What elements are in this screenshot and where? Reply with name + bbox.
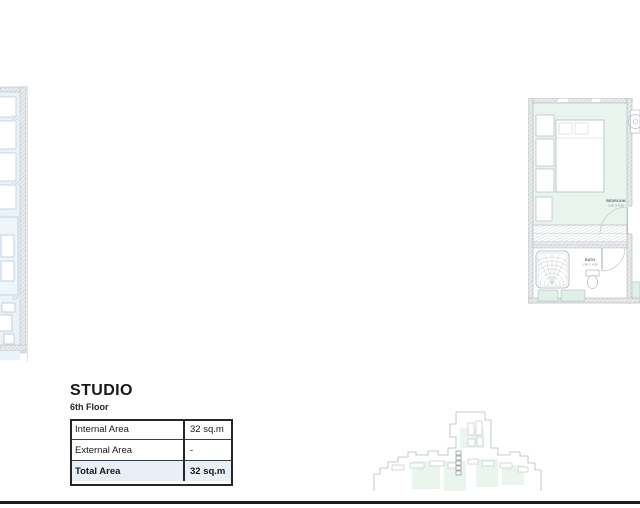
bath-label: BATH [585,258,595,262]
floor-label: 6th Floor [70,402,109,412]
floorplan-page: BEDROOM 3.90 X 4.50 BATH 1. [0,0,640,508]
bed [556,120,604,192]
total-area-label: Total Area [70,461,184,482]
wall [0,345,26,351]
total-area-value: 32 sq.m [184,461,233,482]
studio-floor-plan: BEDROOM 3.90 X 4.50 BATH 1. [528,98,640,305]
internal-area-label: Internal Area [70,419,184,440]
page-title: STUDIO [70,382,133,400]
window-opening [592,99,600,102]
area-table: Internal Area 32 sq.m External Area - To… [70,419,233,481]
wall-stub [12,115,22,120]
bedroom-dimensions: 3.90 X 4.50 [608,204,624,208]
external-area-value: - [184,440,233,461]
table-row-external: External Area - [70,440,233,461]
building-key-plan [372,403,544,492]
wall [20,87,26,353]
wall-stub [12,181,22,186]
adjacent-furniture [1,261,14,281]
internal-area-value: 32 sq.m [184,419,233,440]
window-opening [558,99,568,102]
adjacent-unit-plan-partial [0,85,28,362]
adjacent-room-fill [0,351,20,360]
bath-dimensions: 1.90 X 4.50 [582,263,598,267]
footer-divider-line [0,501,640,504]
key-plan-core [456,451,461,475]
ac-unit [629,110,640,133]
adjacent-furniture [1,235,14,257]
bedroom-label: BEDROOM [606,199,625,203]
adjacent-furniture [0,97,16,209]
table-row-total: Total Area 32 sq.m [70,461,233,482]
table-row-internal: Internal Area 32 sq.m [70,419,233,440]
partition-wall [533,244,627,248]
wall-stub [12,295,24,300]
external-area-label: External Area [70,440,184,461]
